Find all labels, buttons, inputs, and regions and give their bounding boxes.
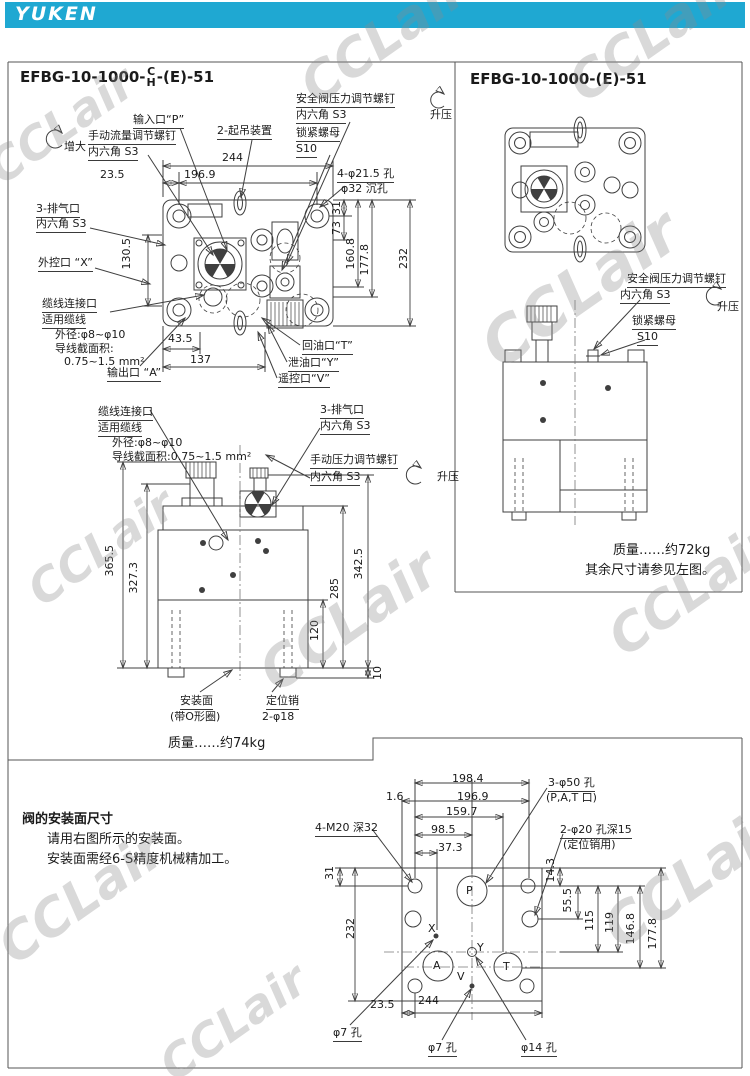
- counterbore-label: φ32 沉孔: [341, 182, 388, 196]
- bolt-holes-label: 4-φ21.5 孔: [337, 167, 394, 183]
- dim-244-top: 244: [222, 151, 243, 165]
- mounting-note-1: 请用右图所示的安装面。: [47, 832, 190, 848]
- locating-pin-label: 定位销: [266, 694, 299, 710]
- lifting-device-label: 2-起吊装置: [217, 124, 272, 140]
- dim-146-8: 146.8: [624, 913, 638, 945]
- port-label-t: T: [503, 960, 510, 974]
- cable-applicable-label: 适用缆线: [42, 313, 86, 329]
- fv-cable-od-label: 外径:φ8~φ10: [112, 436, 182, 450]
- dim-55-5: 55.5: [561, 888, 575, 913]
- outlet-port-label: 输出口 “A”: [107, 366, 161, 382]
- model-tail: -(E)-51: [157, 68, 214, 86]
- mass-72-label: 质量……约72kg: [613, 543, 710, 559]
- cable-connector-label: 缆线连接口: [42, 297, 97, 313]
- dim-365-5: 365.5: [103, 545, 117, 577]
- dim-160-8-tv: 160.8: [344, 238, 358, 270]
- port-label-a: A: [433, 959, 441, 973]
- dim-285: 285: [328, 578, 342, 599]
- remote-port-label: 遥控口“V”: [278, 372, 330, 388]
- dim-31-tv: 31: [330, 201, 344, 215]
- increase-label: 增大: [64, 140, 86, 154]
- right-side-view-drawing: [503, 287, 721, 525]
- dim-327-3: 327.3: [127, 562, 141, 594]
- fv-exhaust-hex-label: 内六角 S3: [320, 419, 370, 435]
- dim-119: 119: [603, 912, 617, 933]
- dim-115: 115: [583, 910, 597, 931]
- phi7-hole-left-label: φ7 孔: [333, 1026, 362, 1042]
- dim-23-5-top: 23.5: [100, 168, 125, 182]
- safety-screw-label: 安全阀压力调节螺钉: [296, 92, 395, 108]
- dim-177-8-tv: 177.8: [358, 244, 372, 276]
- fv-manual-pressure-label: 手动压力调节螺钉: [310, 453, 398, 469]
- dim-342-5: 342.5: [352, 548, 366, 580]
- dim-31-bottom: 31: [323, 866, 337, 880]
- dim-120: 120: [308, 620, 322, 641]
- lock-nut-size-label: S10: [296, 142, 317, 158]
- phi20-pin-label: (定位销用): [563, 838, 616, 852]
- dim-244-bottom: 244: [418, 994, 439, 1008]
- phi7-hole-mid-label: φ7 孔: [428, 1041, 457, 1057]
- safety-screw-hex-label: 内六角 S3: [296, 108, 346, 124]
- dim-177-8-bottom: 177.8: [646, 918, 660, 950]
- return-port-label: 回油口“T”: [302, 339, 353, 355]
- drain-port-label: 泄油口“Y”: [288, 356, 339, 372]
- mount-face-label: 安装面: [180, 694, 213, 710]
- catalog-page: YUKEN EFBG-10-1000- C H -(E)-51 EFBG-10-…: [0, 0, 750, 1076]
- dim-130-5: 130.5: [120, 238, 134, 270]
- dim-198-4: 198.4: [452, 772, 484, 786]
- see-left-figure-note: 其余尺寸请参见左图。: [585, 563, 715, 579]
- port-label-p: P: [466, 884, 473, 898]
- dim-137: 137: [190, 353, 211, 367]
- phi20-holes-label: 2-φ20 孔深15: [560, 823, 632, 839]
- locating-pin-size-label: 2-φ18: [262, 710, 294, 724]
- exhaust-port-label: 3-排气口: [36, 202, 80, 218]
- fv-exhaust-label: 3-排气口: [320, 403, 364, 419]
- m20-holes-label: 4-M20 深32: [315, 821, 378, 837]
- left-model-title: EFBG-10-1000- C H -(E)-51: [20, 66, 214, 88]
- manual-flow-screw-label: 手动流量调节螺钉: [88, 129, 176, 145]
- dim-23-5-bottom: 23.5: [370, 998, 395, 1012]
- dim-14-3: 14.3: [544, 858, 558, 883]
- fv-cable-area-label: 导线截面积:0.75~1.5 mm²: [112, 450, 251, 464]
- lock-nut-label: 锁紧螺母: [296, 126, 340, 142]
- fv-pressure-up-label: 升压: [437, 470, 459, 484]
- mass-74-label: 质量……约74kg: [168, 736, 265, 752]
- dim-73-tv: 73: [330, 221, 344, 235]
- rp-lock-nut-size-label: S10: [637, 330, 658, 346]
- phi50-holes-label: 3-φ50 孔: [548, 776, 595, 792]
- pressure-up-label: 升压: [430, 108, 452, 122]
- right-top-view-drawing: [505, 117, 645, 262]
- port-label-v: V: [457, 970, 465, 984]
- model-variant-stack: C H: [147, 66, 156, 88]
- port-label-y: Y: [477, 941, 484, 955]
- phi14-hole-label: φ14 孔: [521, 1041, 557, 1057]
- dim-159-7: 159.7: [446, 805, 478, 819]
- ext-control-port-label: 外控口 “X”: [38, 256, 93, 272]
- rp-lock-nut-label: 锁紧螺母: [632, 314, 676, 330]
- manual-flow-hex-label: 内六角 S3: [88, 145, 138, 161]
- cable-area-label: 导线截面积:: [55, 342, 114, 356]
- exhaust-hex-label: 内六角 S3: [36, 217, 86, 233]
- mounting-note-2: 安装面需经6-S精度机械精加工。: [47, 852, 237, 868]
- rp-pressure-up-label: 升压: [717, 300, 739, 314]
- fv-cable-connector-label: 缆线连接口: [98, 405, 153, 421]
- dim-196-9: 196.9: [457, 790, 489, 804]
- port-label-x: X: [428, 922, 436, 936]
- dim-43-5: 43.5: [168, 332, 193, 346]
- dim-37-3: 37.3: [438, 841, 463, 855]
- dim-98-5: 98.5: [431, 823, 456, 837]
- phi50-ports-label: (P,A,T 口): [546, 791, 597, 805]
- mount-face-oring-label: (带O形圈): [170, 710, 220, 724]
- dim-10: 10: [371, 666, 385, 680]
- mounting-dims-heading: 阀的安装面尺寸: [22, 812, 113, 828]
- model-variant-h: H: [147, 77, 156, 88]
- rp-safety-screw-label: 安全阀压力调节螺钉: [627, 272, 726, 288]
- right-model-title: EFBG-10-1000-(E)-51: [470, 70, 647, 88]
- fv-manual-pressure-hex-label: 内六角 S3: [310, 470, 360, 486]
- dim-196-9-top: 196.9: [184, 168, 216, 182]
- fv-cable-applicable-label: 适用缆线: [98, 421, 142, 437]
- dim-1-6: 1.6: [386, 790, 404, 804]
- rp-safety-hex-label: 内六角 S3: [620, 288, 670, 304]
- input-port-label: 输入口“P”: [133, 113, 184, 129]
- cable-od-label: 外径:φ8~φ10: [55, 328, 125, 342]
- dim-232-tv: 232: [397, 248, 411, 269]
- dim-232-bottom: 232: [344, 918, 358, 939]
- model-base: EFBG-10-1000-: [20, 68, 146, 86]
